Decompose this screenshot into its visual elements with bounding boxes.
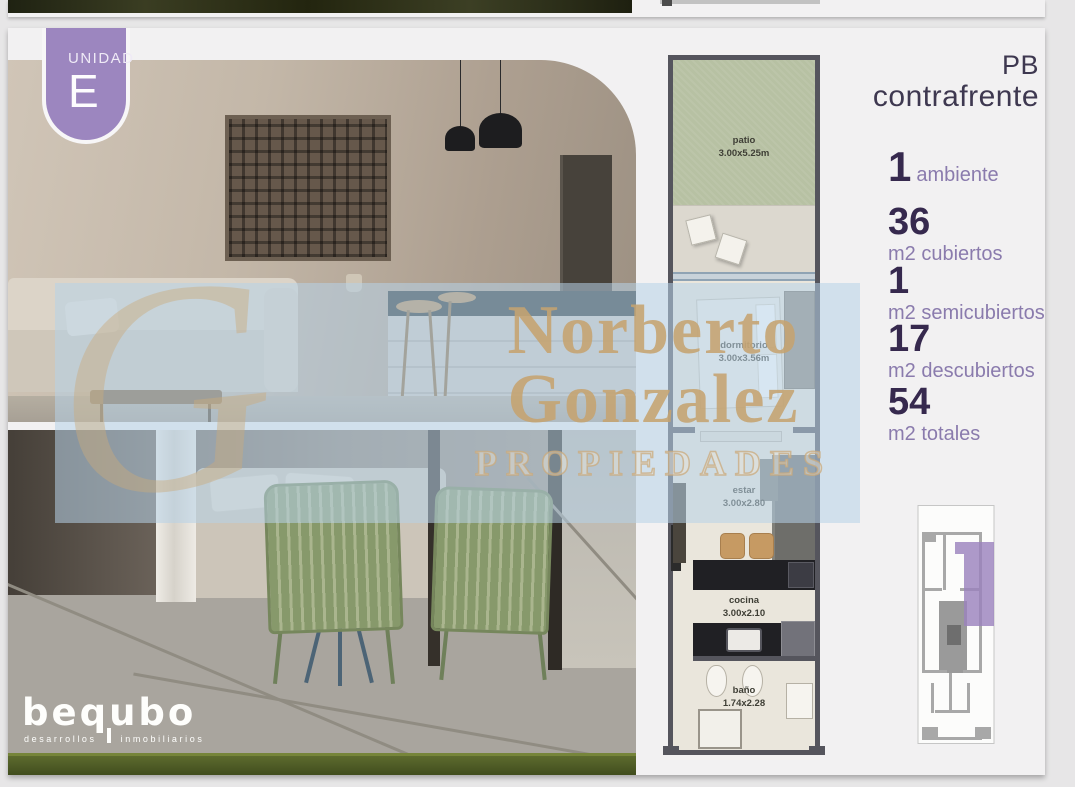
glass-panel: [562, 430, 636, 668]
stat-value: 17: [888, 320, 1035, 358]
tagline-left: desarrollos: [24, 734, 97, 744]
page: { "unit": { "badge_label": "UNIDAD", "ba…: [0, 0, 1075, 787]
pendant-lamp: [479, 113, 522, 148]
stat-label: m2 totales: [888, 423, 980, 446]
bar-stool: [396, 300, 442, 313]
previous-plan-remnant: [660, 0, 820, 4]
unit-badge: UNIDAD E: [42, 28, 130, 144]
room-dims: 1.74x2.28: [673, 698, 815, 711]
lamp-cord: [460, 60, 461, 128]
room-name: patio: [673, 135, 815, 148]
plan-kitchen-counter: [693, 560, 815, 590]
room-name: dormitorio: [673, 340, 815, 353]
room-name: baño: [673, 685, 815, 698]
framed-artwork: [225, 115, 391, 261]
chair-leg: [537, 628, 546, 680]
plan-label-bano: baño 1.74x2.28: [673, 685, 815, 711]
plan-sofa: [772, 455, 815, 567]
stat-m2-semicubiertos: 1 m2 semicubiertos: [888, 262, 1045, 325]
stat-label: ambiente: [916, 164, 998, 187]
stat-value: 36: [888, 203, 1003, 241]
key-plan-svg: [905, 505, 1021, 771]
plant-pot: [346, 274, 362, 292]
room-name: estar: [673, 485, 815, 498]
floor-plan: patio 3.00x5.25m dormitorio 3.00x3.56m e…: [668, 55, 820, 755]
plan-stool: [749, 533, 774, 559]
terrace-chair: [431, 486, 554, 635]
room-dims: 3.00x3.56m: [673, 353, 815, 366]
unit-orientation: contrafrente: [873, 80, 1039, 114]
coffee-table: [90, 390, 222, 404]
lamp-cord: [500, 60, 501, 115]
plan-sink: [726, 628, 762, 652]
terrace-chair: [263, 480, 403, 635]
plan-dresser: [700, 431, 782, 442]
unit-sheet-card: UNIDAD E bequbo desarrollos inmobiliario…: [8, 28, 1045, 775]
table-leg: [100, 404, 103, 422]
bar-stool: [438, 292, 476, 303]
plan-label-estar: estar 3.00x2.80: [673, 485, 815, 511]
plan-wall-footing: [663, 746, 679, 755]
unit-badge-letter: E: [68, 67, 126, 115]
key-plan-diagram: [905, 505, 1021, 771]
stat-m2-descubiertos: 17 m2 descubiertos: [888, 320, 1035, 383]
room-dims: 3.00x5.25m: [673, 148, 815, 161]
grass-strip: [8, 753, 636, 775]
plan-window-line: [673, 272, 815, 281]
stat-ambientes: 1 ambiente: [888, 146, 999, 188]
plan-wall-footing: [809, 746, 825, 755]
plan-stove: [781, 621, 815, 658]
stat-label: m2 descubiertos: [888, 360, 1035, 383]
kitchen-tall-unit: [560, 155, 612, 291]
key-plan-unit-highlight: [964, 542, 994, 626]
plan-bath-wall: [693, 656, 815, 661]
sofa-back: [8, 278, 298, 336]
plan-stool: [720, 533, 745, 559]
tagline-right: inmobiliarios: [121, 734, 205, 744]
previous-render-remnant: [8, 0, 632, 13]
chair-leg: [273, 626, 283, 684]
plan-appliance: [788, 562, 814, 588]
developer-logo-name: bequbo: [22, 694, 204, 731]
plan-label-cocina: cocina 3.00x2.10: [673, 595, 815, 621]
stat-value: 54: [888, 383, 980, 421]
room-dims: 3.00x2.80: [673, 498, 815, 511]
tagline-divider: [107, 728, 111, 743]
plan-shower: [698, 709, 742, 749]
stat-value: 1: [888, 146, 911, 188]
developer-logo: bequbo desarrollos inmobiliarios: [22, 694, 204, 744]
sofa-armrest: [264, 288, 298, 392]
unit-level: PB: [873, 50, 1039, 80]
stat-value: 1: [888, 262, 1045, 300]
unit-location-title: PB contrafrente: [873, 50, 1039, 114]
room-name: cocina: [673, 595, 815, 608]
previous-card-remnant: [8, 0, 1045, 17]
plan-label-dormitorio: dormitorio 3.00x3.56m: [673, 340, 815, 366]
previous-plan-wall-mark: [662, 0, 672, 6]
chair-leg: [385, 626, 395, 684]
pendant-lamp: [445, 126, 475, 151]
sofa-pillow: [64, 297, 119, 336]
plan-wall-stub: [673, 427, 695, 433]
stat-m2-totales: 54 m2 totales: [888, 383, 980, 446]
plan-label-patio: patio 3.00x5.25m: [673, 135, 815, 161]
table-leg: [208, 404, 211, 422]
room-dims: 3.00x2.10: [673, 608, 815, 621]
plan-patio-grass: [673, 60, 815, 205]
sofa-seat: [8, 330, 298, 392]
curtain: [156, 430, 196, 602]
developer-logo-tagline: desarrollos inmobiliarios: [24, 734, 204, 744]
chair-leg: [439, 628, 448, 680]
plan-wall-stub: [793, 427, 815, 433]
stat-m2-cubiertos: 36 m2 cubiertos: [888, 203, 1003, 266]
